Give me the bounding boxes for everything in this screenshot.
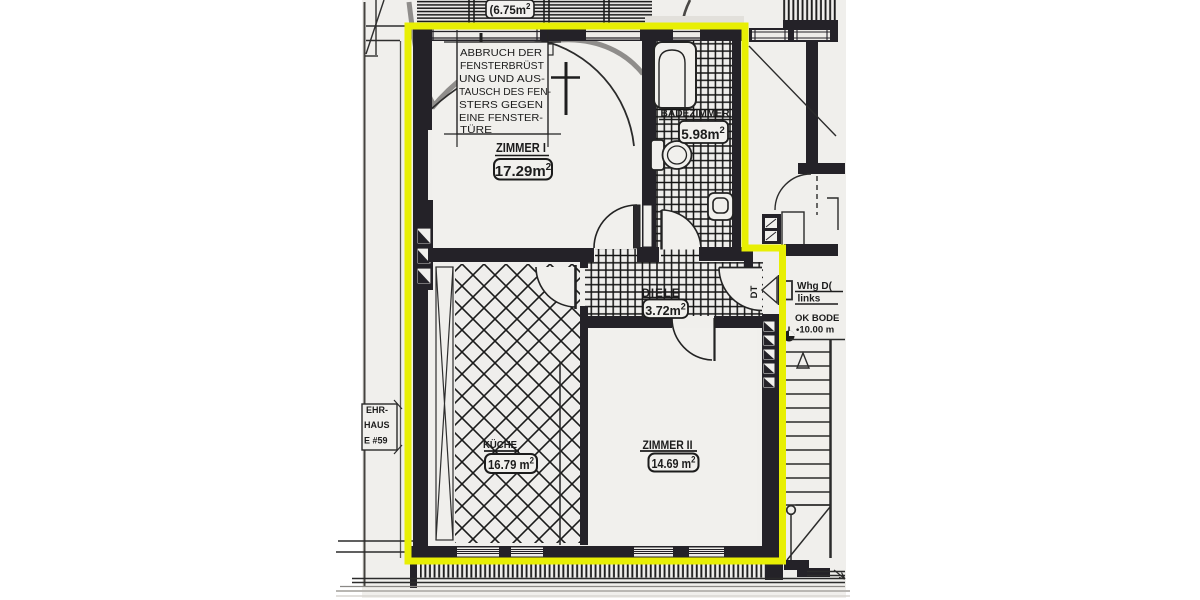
svg-text:TÜRE: TÜRE [460,124,492,136]
svg-text:Whg D(: Whg D( [797,281,833,292]
svg-text:14.69 m2: 14.69 m2 [652,455,696,472]
svg-text:•10.00 m: •10.00 m [796,325,834,336]
svg-text:STERS GEGEN: STERS GEGEN [459,99,543,111]
svg-text:16.79 m2: 16.79 m2 [488,456,534,473]
svg-text:E #59: E #59 [364,436,388,446]
svg-text:5.98m2: 5.98m2 [681,125,725,142]
svg-text:ABBRUCH DER: ABBRUCH DER [460,47,542,59]
svg-text:BADEZIMMER: BADEZIMMER [661,108,730,120]
svg-text:3.72m2: 3.72m2 [645,302,685,319]
svg-text:UNG UND AUS-: UNG UND AUS- [459,73,546,85]
svg-text:17.29m2: 17.29m2 [495,162,552,180]
svg-text:KÜCHE: KÜCHE [483,438,517,451]
svg-text:EINE FENSTER-: EINE FENSTER- [459,112,544,124]
svg-text:ZIMMER I: ZIMMER I [496,140,546,155]
svg-text:TAUSCH DES FEN-: TAUSCH DES FEN- [459,86,551,98]
svg-text:FENSTERBRÜST: FENSTERBRÜST [460,60,545,72]
svg-text:links: links [798,294,821,305]
svg-text:OK BODE: OK BODE [795,313,839,324]
svg-text:DT: DT [749,285,760,298]
svg-text:EHR-: EHR- [366,405,388,415]
svg-text:HAUS: HAUS [364,420,390,430]
svg-text:(6.75m2: (6.75m2 [490,2,531,17]
